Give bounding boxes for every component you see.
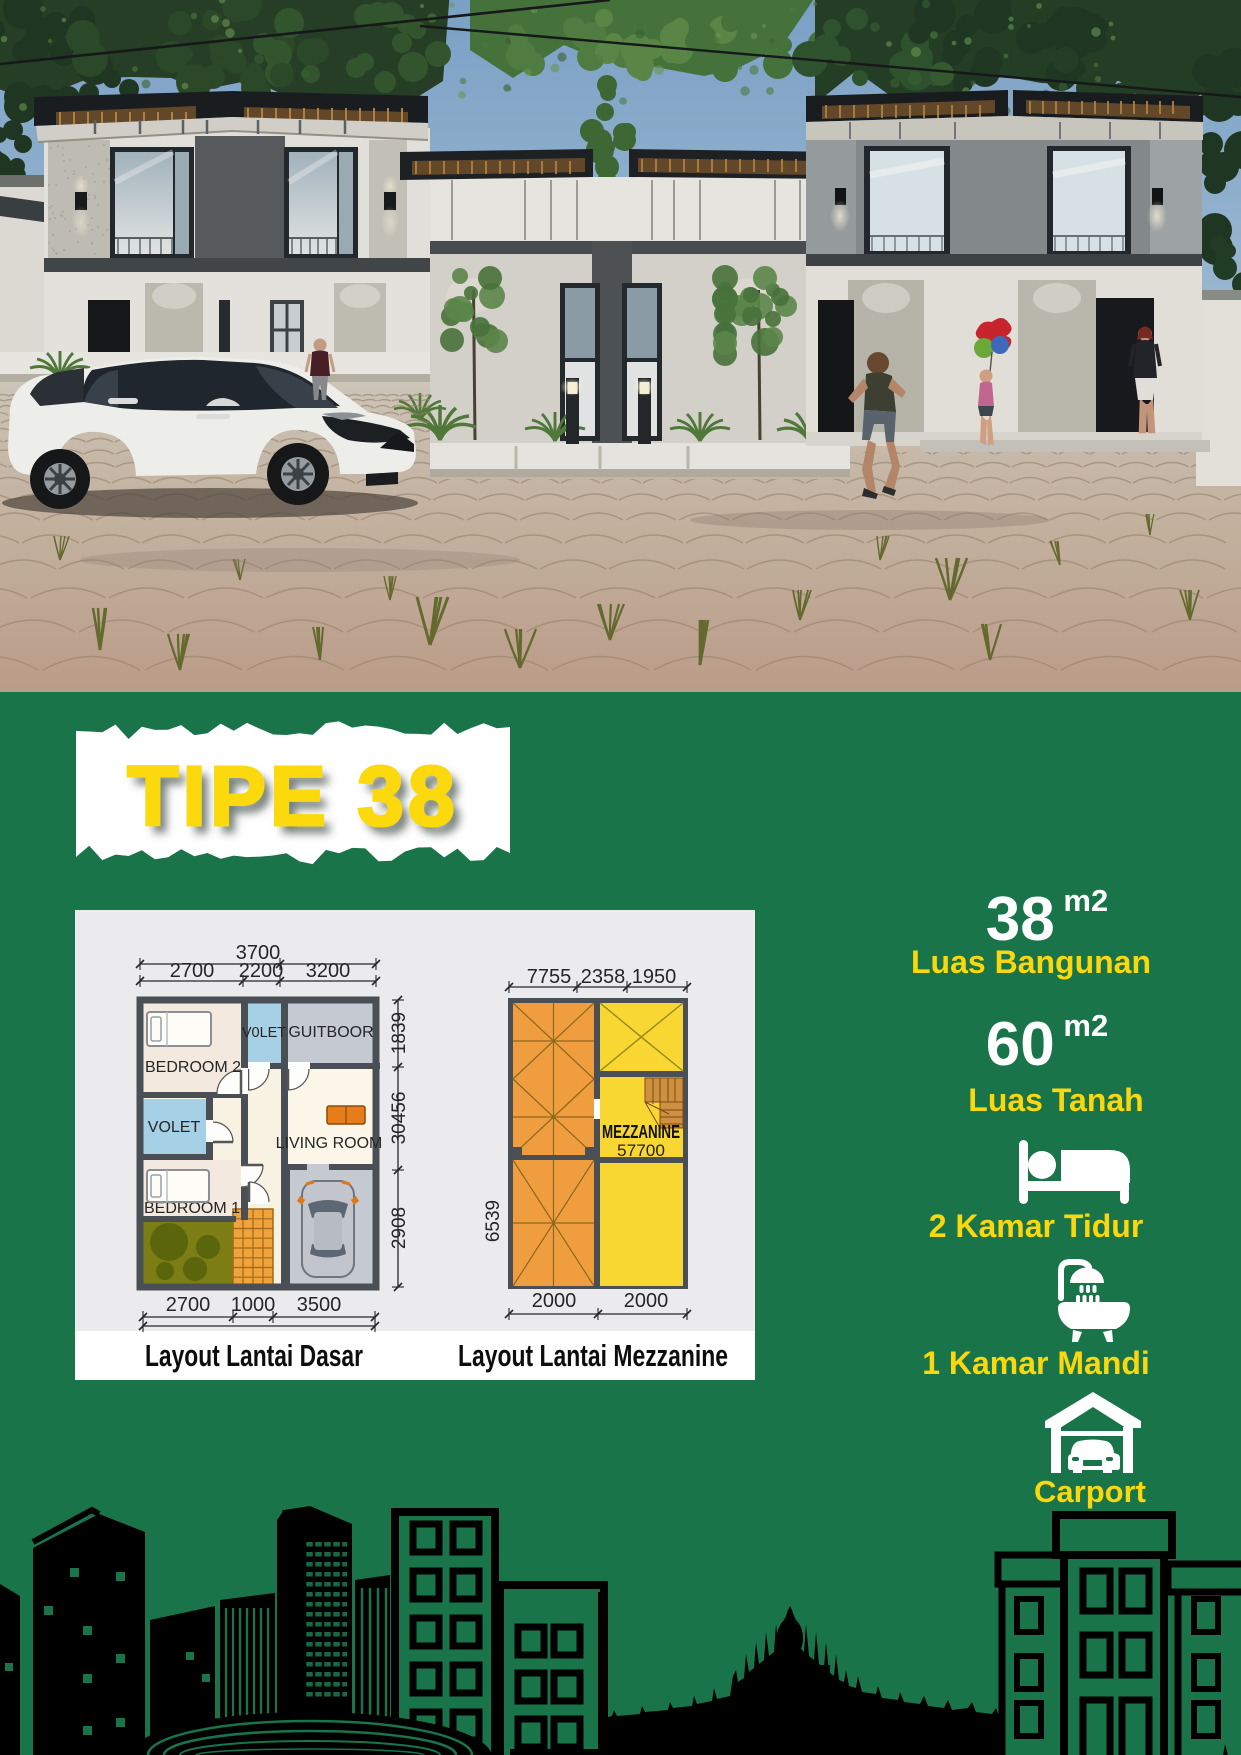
svg-text:2700: 2700	[170, 960, 215, 982]
svg-text:1839: 1839	[389, 1012, 410, 1054]
svg-text:57700: 57700	[617, 1141, 665, 1160]
svg-text:MEZZANINE: MEZZANINE	[602, 1122, 680, 1142]
svg-text:Layout Lantai Mezzanine: Layout Lantai Mezzanine	[458, 1338, 728, 1373]
svg-text:7755: 7755	[527, 966, 572, 988]
svg-text:30456: 30456	[389, 1092, 410, 1145]
svg-text:6539: 6539	[483, 1200, 504, 1242]
svg-text:1000: 1000	[231, 1294, 276, 1316]
svg-text:BEDROOM 2: BEDROOM 2	[145, 1059, 241, 1076]
svg-text:GUITBOOR: GUITBOOR	[288, 1024, 373, 1041]
svg-text:2000: 2000	[532, 1290, 577, 1312]
svg-text:3500: 3500	[297, 1294, 342, 1316]
svg-text:2700: 2700	[166, 1294, 211, 1316]
svg-text:VOLET: VOLET	[148, 1119, 201, 1136]
svg-text:1950: 1950	[632, 966, 677, 988]
svg-text:2908: 2908	[389, 1207, 410, 1249]
svg-text:2358: 2358	[581, 966, 626, 988]
svg-text:3200: 3200	[306, 960, 351, 982]
svg-text:LIVING ROOM: LIVING ROOM	[276, 1135, 383, 1152]
svg-text:Layout Lantai Dasar: Layout Lantai Dasar	[145, 1338, 363, 1373]
svg-text:2000: 2000	[624, 1290, 669, 1312]
svg-text:V0LET: V0LET	[242, 1025, 286, 1041]
